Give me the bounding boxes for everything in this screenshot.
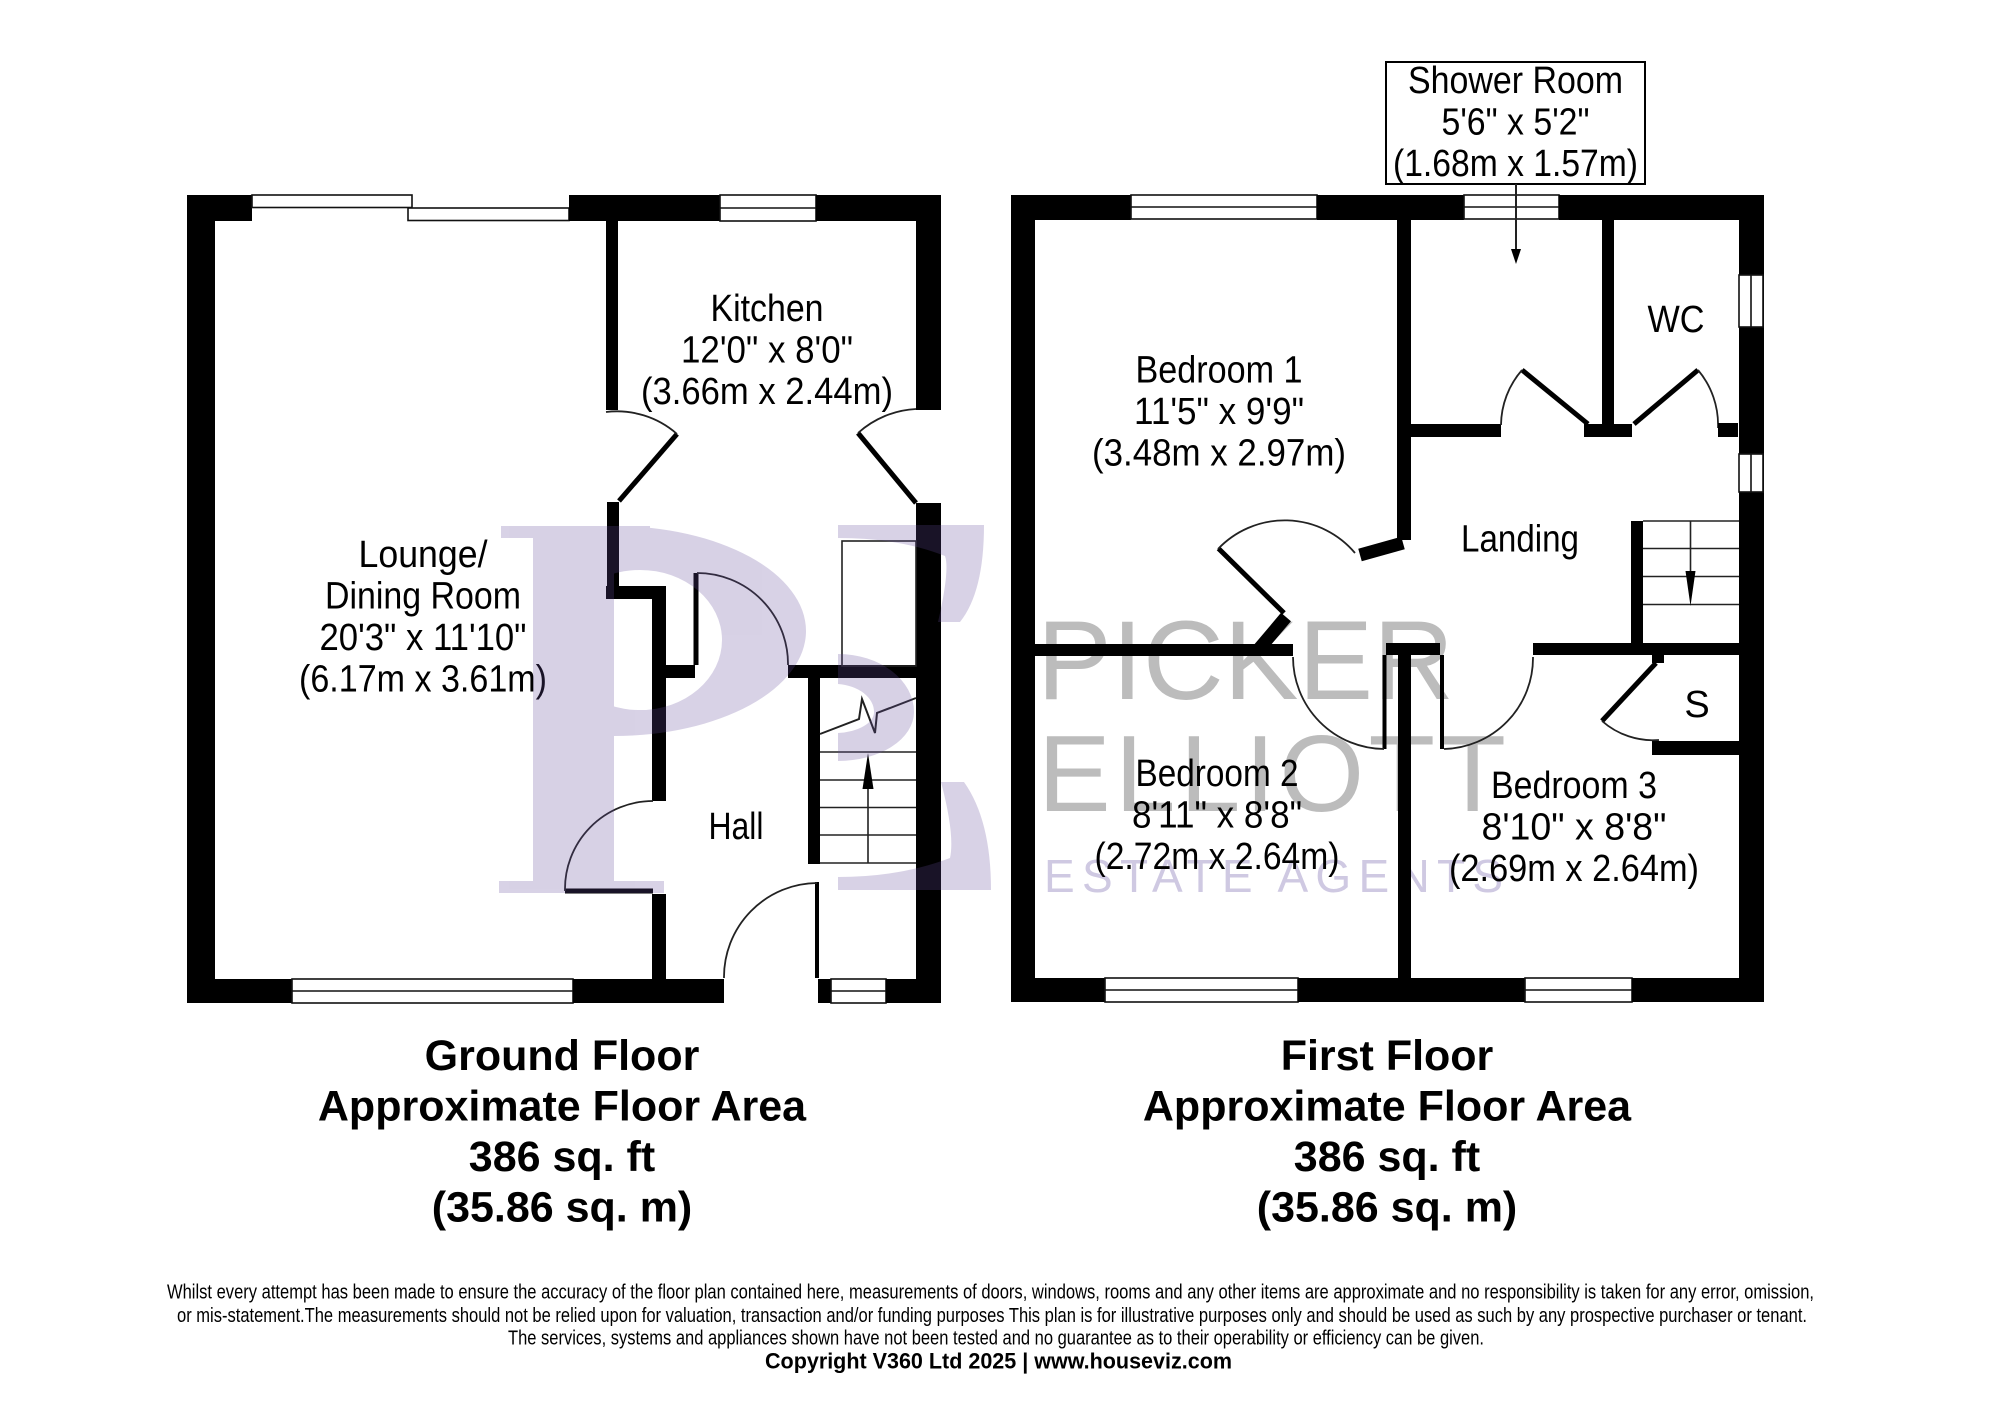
svg-text:(6.17m x 3.61m): (6.17m x 3.61m): [299, 659, 547, 701]
svg-text:12'0" x 8'0": 12'0" x 8'0": [681, 330, 853, 372]
svg-text:Approximate Floor Area: Approximate Floor Area: [1143, 1083, 1632, 1131]
svg-text:WC: WC: [1648, 299, 1705, 341]
svg-text:(1.68m x 1.57m): (1.68m x 1.57m): [1393, 143, 1638, 185]
svg-text:386 sq. ft: 386 sq. ft: [1294, 1133, 1480, 1181]
svg-text:S: S: [1684, 684, 1709, 726]
svg-text:8'10" x 8'8": 8'10" x 8'8": [1482, 807, 1667, 849]
svg-text:Kitchen: Kitchen: [711, 288, 824, 330]
svg-text:(2.69m x 2.64m): (2.69m x 2.64m): [1449, 848, 1699, 890]
svg-text:Dining Room: Dining Room: [325, 576, 521, 618]
svg-text:(3.66m x 2.44m): (3.66m x 2.44m): [641, 371, 893, 413]
svg-text:(3.48m x 2.97m): (3.48m x 2.97m): [1092, 433, 1346, 475]
svg-text:20'3" x 11'10": 20'3" x 11'10": [320, 617, 527, 659]
svg-text:The services, systems and appl: The services, systems and appliances sho…: [508, 1328, 1484, 1350]
svg-text:Hall: Hall: [709, 806, 764, 848]
svg-text:Bedroom 3: Bedroom 3: [1491, 765, 1657, 807]
svg-text:Shower Room: Shower Room: [1408, 60, 1623, 102]
svg-text:(2.72m x 2.64m): (2.72m x 2.64m): [1095, 836, 1340, 878]
svg-text:Bedroom 2: Bedroom 2: [1136, 753, 1299, 795]
svg-text:Bedroom 1: Bedroom 1: [1136, 350, 1303, 392]
svg-text:PICKER: PICKER: [1037, 598, 1454, 723]
svg-text:Ground Floor: Ground Floor: [425, 1032, 700, 1080]
svg-text:11'5" x 9'9": 11'5" x 9'9": [1134, 391, 1304, 433]
svg-text:(35.86 sq. m): (35.86 sq. m): [1257, 1184, 1518, 1232]
svg-text:Whilst every attempt has been: Whilst every attempt has been made to en…: [167, 1282, 1814, 1304]
svg-text:8'11" x 8'8": 8'11" x 8'8": [1132, 795, 1302, 837]
svg-text:or mis-statement.The measureme: or mis-statement.The measurements should…: [177, 1305, 1807, 1327]
svg-text:Copyright V360 Ltd 2025 | www.: Copyright V360 Ltd 2025 | www.houseviz.c…: [765, 1349, 1232, 1374]
svg-text:Lounge/: Lounge/: [359, 534, 488, 576]
svg-text:Approximate Floor Area: Approximate Floor Area: [318, 1083, 807, 1131]
svg-text:Landing: Landing: [1461, 519, 1579, 561]
svg-text:(35.86 sq. m): (35.86 sq. m): [432, 1184, 693, 1232]
svg-text:5'6" x 5'2": 5'6" x 5'2": [1442, 102, 1590, 144]
svg-text:First Floor: First Floor: [1281, 1032, 1494, 1080]
svg-text:386 sq. ft: 386 sq. ft: [469, 1133, 655, 1181]
